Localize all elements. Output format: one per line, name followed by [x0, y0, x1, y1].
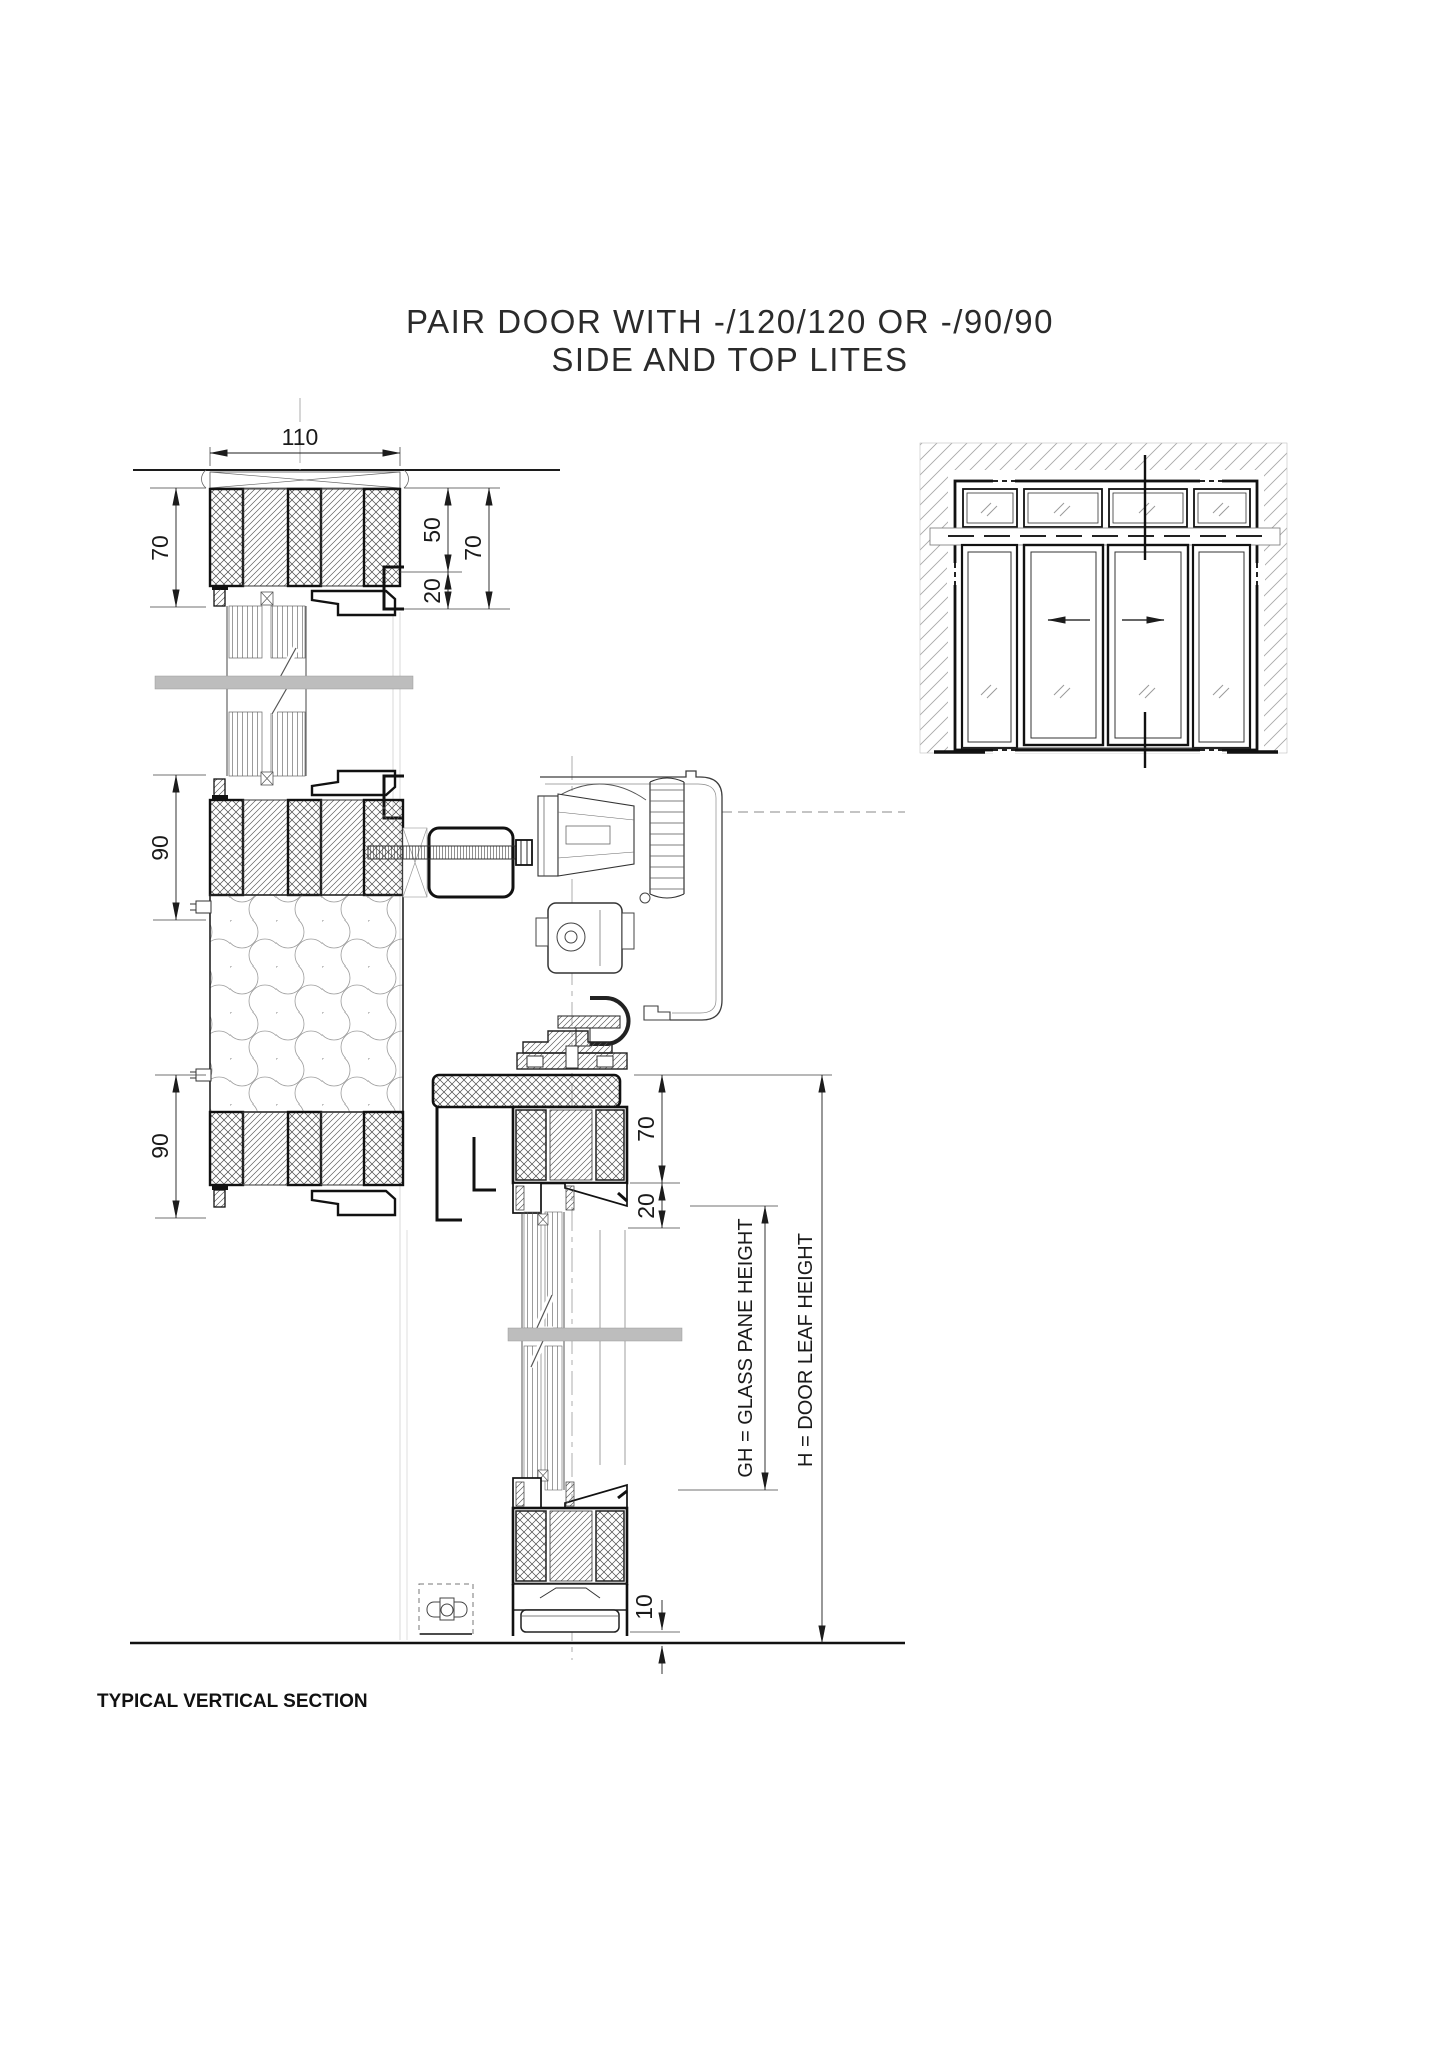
dim-head-total: 70: [460, 488, 489, 609]
fixing-screw-icon: [190, 901, 211, 1081]
technical-drawing-canvas: 110 70 50 20 70 90 90 70 20: [0, 0, 1448, 2048]
dim-value: 20: [633, 1193, 659, 1219]
door-leaf-right: [1108, 545, 1188, 745]
dim-value: 70: [633, 1116, 659, 1142]
door-leaf-top-rail: [513, 1107, 627, 1213]
dim-value: 90: [147, 835, 173, 861]
door-leaf-glass: [508, 1212, 682, 1490]
operator-pulley: [640, 778, 684, 903]
dim-floor-gap: 10: [630, 1594, 680, 1674]
dim-leaf-top-bead: 20: [628, 1183, 680, 1228]
dim-value: 10: [631, 1594, 657, 1620]
dim-head-upper: 50: [400, 488, 510, 609]
transom-profile: [190, 771, 532, 1215]
dim-value: 50: [419, 517, 445, 543]
transom-band: [930, 528, 1280, 545]
dim-glass-pane-height: GH = GLASS PANE HEIGHT: [678, 1206, 778, 1490]
dim-value: 70: [147, 535, 173, 561]
floor-guide-dashed: [419, 1584, 473, 1634]
dim-transom-lower: 90: [147, 1075, 206, 1218]
door-leaf-bottom-rail: [513, 1478, 627, 1636]
dim-value: 110: [282, 424, 319, 450]
dim-frame-width: 110: [210, 424, 400, 466]
glass-pane-height-label: GH = GLASS PANE HEIGHT: [735, 1218, 757, 1477]
top-lite-glass: [155, 592, 413, 785]
dim-value: 70: [460, 535, 486, 561]
dim-door-leaf-height: H = DOOR LEAF HEIGHT: [795, 1075, 822, 1643]
dim-leaf-top-rail: 70: [630, 1075, 832, 1183]
drawing-title-line-1: PAIR DOOR WITH -/120/120 OR -/90/90: [406, 303, 1054, 340]
break-band: [508, 1328, 682, 1341]
dim-value: 90: [147, 1133, 173, 1159]
operator-motor: [538, 794, 634, 876]
insulation-core: [210, 895, 403, 1112]
door-leaf-height-label: H = DOOR LEAF HEIGHT: [795, 1233, 817, 1467]
door-leaf-left: [1024, 545, 1103, 745]
drawing-caption: TYPICAL VERTICAL SECTION: [97, 1691, 368, 1712]
side-lite-left: [962, 545, 1017, 748]
drawing-title-line-2: SIDE AND TOP LITES: [551, 341, 908, 378]
dim-head-height: 70: [147, 488, 206, 607]
header-band: [433, 1075, 620, 1107]
frame-head-profile: [202, 470, 409, 615]
dim-head-bead: 20: [419, 572, 448, 609]
break-band: [155, 676, 413, 689]
drawing-page: 110 70 50 20 70 90 90 70 20: [0, 0, 1448, 2048]
door-operator: [536, 771, 722, 1046]
side-lite-right: [1193, 545, 1250, 748]
dim-transom-upper: 90: [147, 775, 206, 920]
dim-value: 20: [419, 578, 445, 604]
elevation-diagram: [920, 443, 1287, 768]
belt-carriage: [536, 903, 634, 1046]
